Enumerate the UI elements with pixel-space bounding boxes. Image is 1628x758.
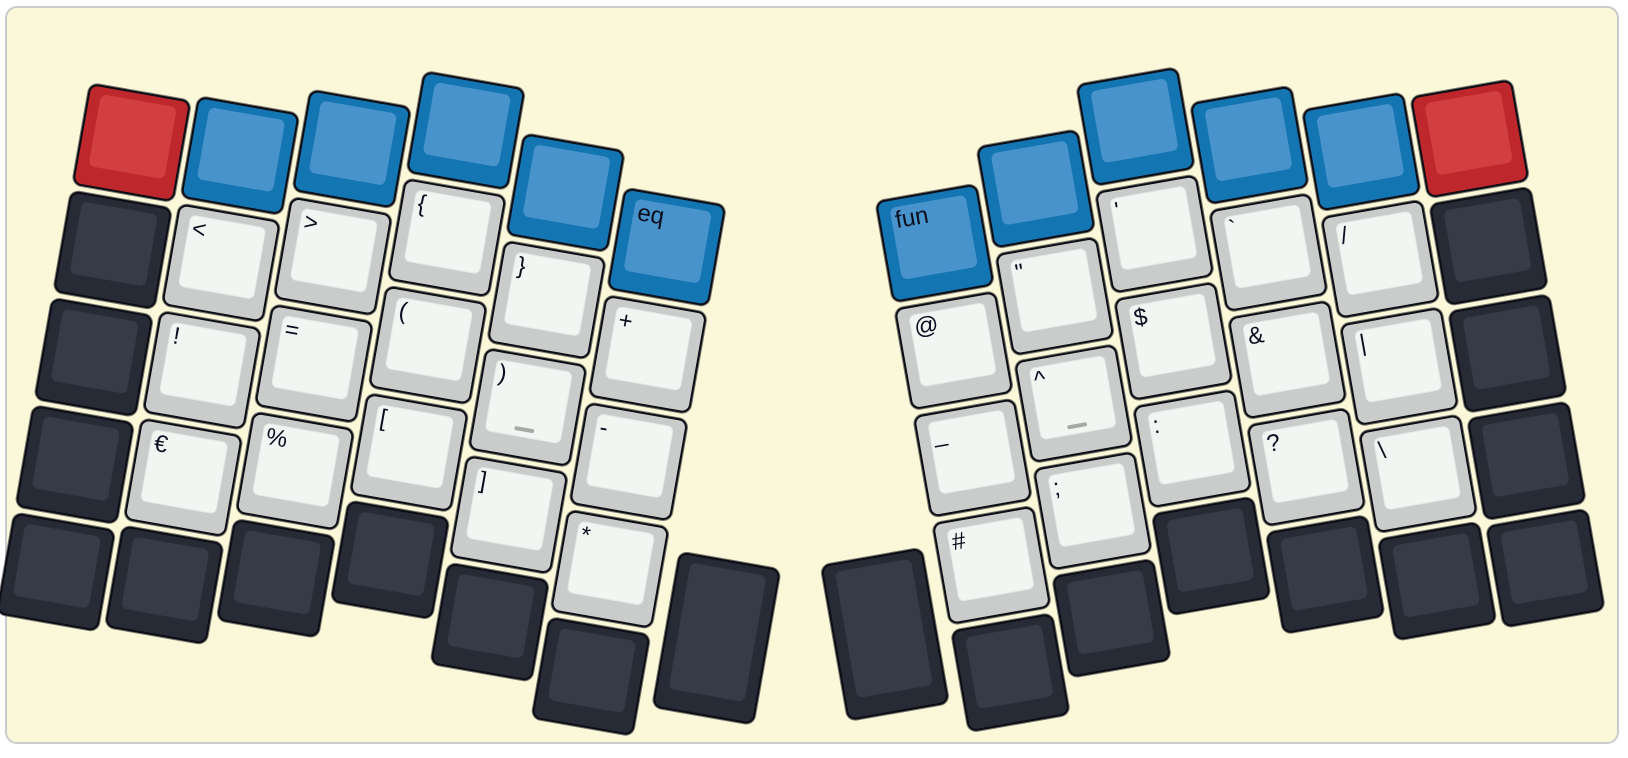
key-legend: { (415, 190, 428, 219)
key-right-ampersand[interactable]: & (1227, 300, 1346, 419)
key-right-blank-dark-right-r2[interactable] (1448, 294, 1567, 413)
keycap-face (13, 523, 102, 608)
keycap-face (605, 305, 694, 390)
key-right-mod-blue-right-3[interactable] (1190, 86, 1309, 205)
key-left-plus[interactable]: + (588, 294, 707, 413)
keycap-face (1443, 197, 1532, 282)
key-legend: * (578, 521, 592, 550)
keycap-face (908, 302, 997, 387)
key-right-caret-home[interactable]: ^ (1014, 344, 1133, 463)
key-left-blank-dark-left-r4c4[interactable] (430, 562, 549, 681)
key-left-blank-dark-left-r3[interactable] (15, 405, 134, 524)
keycap-face (366, 404, 455, 489)
key-right-fun-layer[interactable]: fun (875, 183, 994, 302)
keycap-face (1066, 569, 1155, 654)
key-legend: ; (1051, 474, 1062, 503)
key-right-mod-red-right[interactable] (1410, 79, 1529, 198)
keycap-face (1028, 355, 1117, 440)
keycap-face (1166, 508, 1255, 593)
keycap-face (1128, 293, 1217, 378)
key-left-blank-dark-left-r4c1[interactable] (105, 526, 224, 645)
keycap-face (1424, 90, 1513, 175)
key-right-apostrophe[interactable]: ' (1094, 174, 1213, 293)
keycap-face (385, 297, 474, 382)
key-legend: eq (635, 199, 666, 231)
keycap-face (1261, 419, 1350, 504)
key-right-underscore[interactable]: _ (913, 398, 1032, 517)
keycap-face (567, 520, 656, 605)
keycap-face (1204, 97, 1293, 182)
key-legend: \ (1376, 437, 1387, 466)
keycap-face (271, 315, 360, 400)
keycap-face (1109, 185, 1198, 270)
key-legend: } (515, 252, 528, 281)
key-legend: = (283, 316, 302, 346)
keycap-face (1223, 204, 1312, 289)
key-left-open-bracket[interactable]: [ (349, 393, 468, 512)
key-left-euro[interactable]: € (124, 418, 243, 537)
key-left-eq-layer[interactable]: eq (607, 187, 726, 306)
key-right-pipe[interactable]: | (1339, 307, 1458, 426)
key-left-less-than[interactable]: < (161, 204, 280, 323)
keycap-face (548, 627, 637, 712)
keycap-face (347, 511, 436, 596)
key-right-blank-dark-right-r4c3[interactable] (1151, 496, 1270, 615)
key-legend: : (1151, 412, 1162, 441)
key-legend: # (950, 527, 968, 557)
keycap-face (140, 429, 229, 514)
key-legend: / (1339, 222, 1350, 251)
key-legend: ` (1227, 215, 1240, 244)
keyboard-layout-canvas: eq<>{}+!=()-€%[]*fun@"'`/_^$&|#;:?\ (0, 0, 1628, 758)
key-left-blank-dark-left-r4c5[interactable] (531, 616, 650, 735)
key-legend: < (190, 215, 209, 245)
keycap-face (889, 194, 978, 279)
keycap-face (1147, 400, 1236, 485)
key-left-open-brace[interactable]: { (387, 178, 506, 297)
keycap-face (668, 563, 766, 702)
keycap-face (835, 559, 933, 698)
key-left-close-bracket[interactable]: ] (449, 455, 568, 574)
keycap-face (1316, 104, 1405, 189)
key-right-mod-blue-right-2[interactable] (1076, 67, 1195, 186)
key-right-semicolon[interactable]: ; (1033, 451, 1152, 570)
key-left-mod-red-left[interactable] (72, 83, 191, 202)
key-left-mod-blue-left-4[interactable] (506, 133, 625, 252)
keycap-face (485, 358, 574, 443)
key-right-slash[interactable]: / (1320, 200, 1439, 319)
key-right-double-quote[interactable]: " (995, 236, 1114, 355)
keycap-face (121, 537, 210, 622)
key-left-close-brace[interactable]: } (487, 240, 606, 359)
keycap-face (88, 94, 177, 179)
key-left-minus[interactable]: - (569, 402, 688, 521)
key-left-equals[interactable]: = (254, 304, 373, 423)
key-left-mod-blue-left-3[interactable] (406, 71, 525, 190)
keycap-face (946, 516, 1035, 601)
keycap-face (1047, 462, 1136, 547)
keycap-face (197, 107, 286, 192)
key-legend: @ (912, 310, 941, 342)
keycap-face (178, 215, 267, 300)
key-right-blank-dark-right-r4c1[interactable] (950, 613, 1069, 732)
keycap-face (586, 413, 675, 498)
key-right-mod-blue-right-4[interactable] (1301, 92, 1420, 211)
key-legend: | (1358, 330, 1369, 359)
keycap-face (252, 423, 341, 508)
keycap-face (1500, 519, 1589, 604)
key-left-exclamation[interactable]: ! (142, 311, 261, 430)
keycap-face (927, 409, 1016, 494)
key-right-dollar[interactable]: $ (1113, 282, 1232, 401)
key-legend: € (152, 430, 170, 460)
key-legend: & (1246, 321, 1267, 351)
key-right-blank-dark-right-r4c6[interactable] (1485, 508, 1604, 627)
keycap-face (990, 140, 1079, 225)
key-left-close-paren-home[interactable]: ) (468, 347, 587, 466)
keycap-face (503, 251, 592, 336)
key-right-blank-dark-right-r1[interactable] (1429, 186, 1548, 305)
keycap-face (965, 624, 1054, 709)
keycap-face (623, 198, 712, 283)
key-left-blank-dark-left-r4c2[interactable] (216, 519, 335, 638)
key-left-blank-dark-left-r4c0[interactable] (0, 512, 116, 631)
key-right-blank-dark-right-r4c2[interactable] (1051, 558, 1170, 677)
keycap-face (1009, 247, 1098, 332)
keycap-face (233, 530, 322, 615)
key-legend: ) (496, 359, 509, 388)
key-legend: ] (477, 466, 488, 495)
key-legend: ( (396, 297, 409, 326)
keycap-face (466, 466, 555, 551)
key-legend: $ (1132, 303, 1150, 333)
keycap-face (522, 144, 611, 229)
keycap-face (1090, 78, 1179, 163)
key-right-mod-blue-right-1[interactable] (976, 129, 1095, 248)
keycap-face (70, 201, 159, 286)
keycap-face (1280, 526, 1369, 611)
keycap-face (1242, 311, 1331, 396)
key-right-hash[interactable]: # (931, 505, 1050, 624)
keycap-face (309, 101, 398, 186)
key-legend: % (264, 423, 290, 454)
keycap-face (1335, 211, 1424, 296)
homing-bar (514, 425, 534, 432)
keycap-face (423, 82, 512, 167)
key-legend: ^ (1032, 365, 1048, 395)
key-left-asterisk[interactable]: * (550, 509, 669, 628)
keycap-face (1462, 305, 1551, 390)
keycap-face (1354, 318, 1443, 403)
key-left-open-paren[interactable]: ( (368, 285, 487, 404)
key-legend: _ (931, 419, 949, 449)
key-legend: " (1013, 259, 1026, 288)
key-legend: + (616, 306, 635, 336)
key-right-colon[interactable]: : (1132, 389, 1251, 508)
key-right-blank-dark-right-r3[interactable] (1466, 401, 1585, 520)
key-left-blank-dark-left-r1[interactable] (53, 190, 172, 309)
key-left-greater-than[interactable]: > (273, 197, 392, 316)
keycap-face (1391, 533, 1480, 618)
key-legend: > (301, 209, 320, 239)
key-legend: ? (1265, 429, 1283, 459)
keycap-face (1481, 412, 1570, 497)
keycap-face (32, 416, 121, 501)
key-left-mod-blue-left-2[interactable] (292, 89, 411, 208)
key-legend: - (597, 413, 610, 442)
key-legend: [ (378, 405, 389, 434)
key-right-blank-dark-right-r4c5[interactable] (1377, 522, 1496, 641)
key-legend: ' (1113, 197, 1122, 225)
key-legend: ! (171, 323, 182, 352)
key-right-at-sign[interactable]: @ (894, 291, 1013, 410)
key-right-blank-dark-right-r4c4[interactable] (1265, 515, 1384, 634)
key-left-blank-dark-left-r2[interactable] (34, 297, 153, 416)
key-right-backslash[interactable]: \ (1358, 415, 1477, 534)
keycap-face (290, 208, 379, 293)
keycap-face (1373, 426, 1462, 511)
key-left-percent[interactable]: % (235, 411, 354, 530)
keycap-face (51, 308, 140, 393)
key-right-question[interactable]: ? (1246, 408, 1365, 527)
homing-bar (1067, 422, 1087, 429)
key-legend: fun (893, 201, 931, 234)
key-left-blank-dark-left-r4c3[interactable] (330, 500, 449, 619)
keycap-face (447, 573, 536, 658)
keycap-face (404, 189, 493, 274)
key-left-mod-blue-left-1[interactable] (180, 96, 299, 215)
key-right-backtick[interactable]: ` (1208, 193, 1327, 312)
keycap-face (159, 322, 248, 407)
